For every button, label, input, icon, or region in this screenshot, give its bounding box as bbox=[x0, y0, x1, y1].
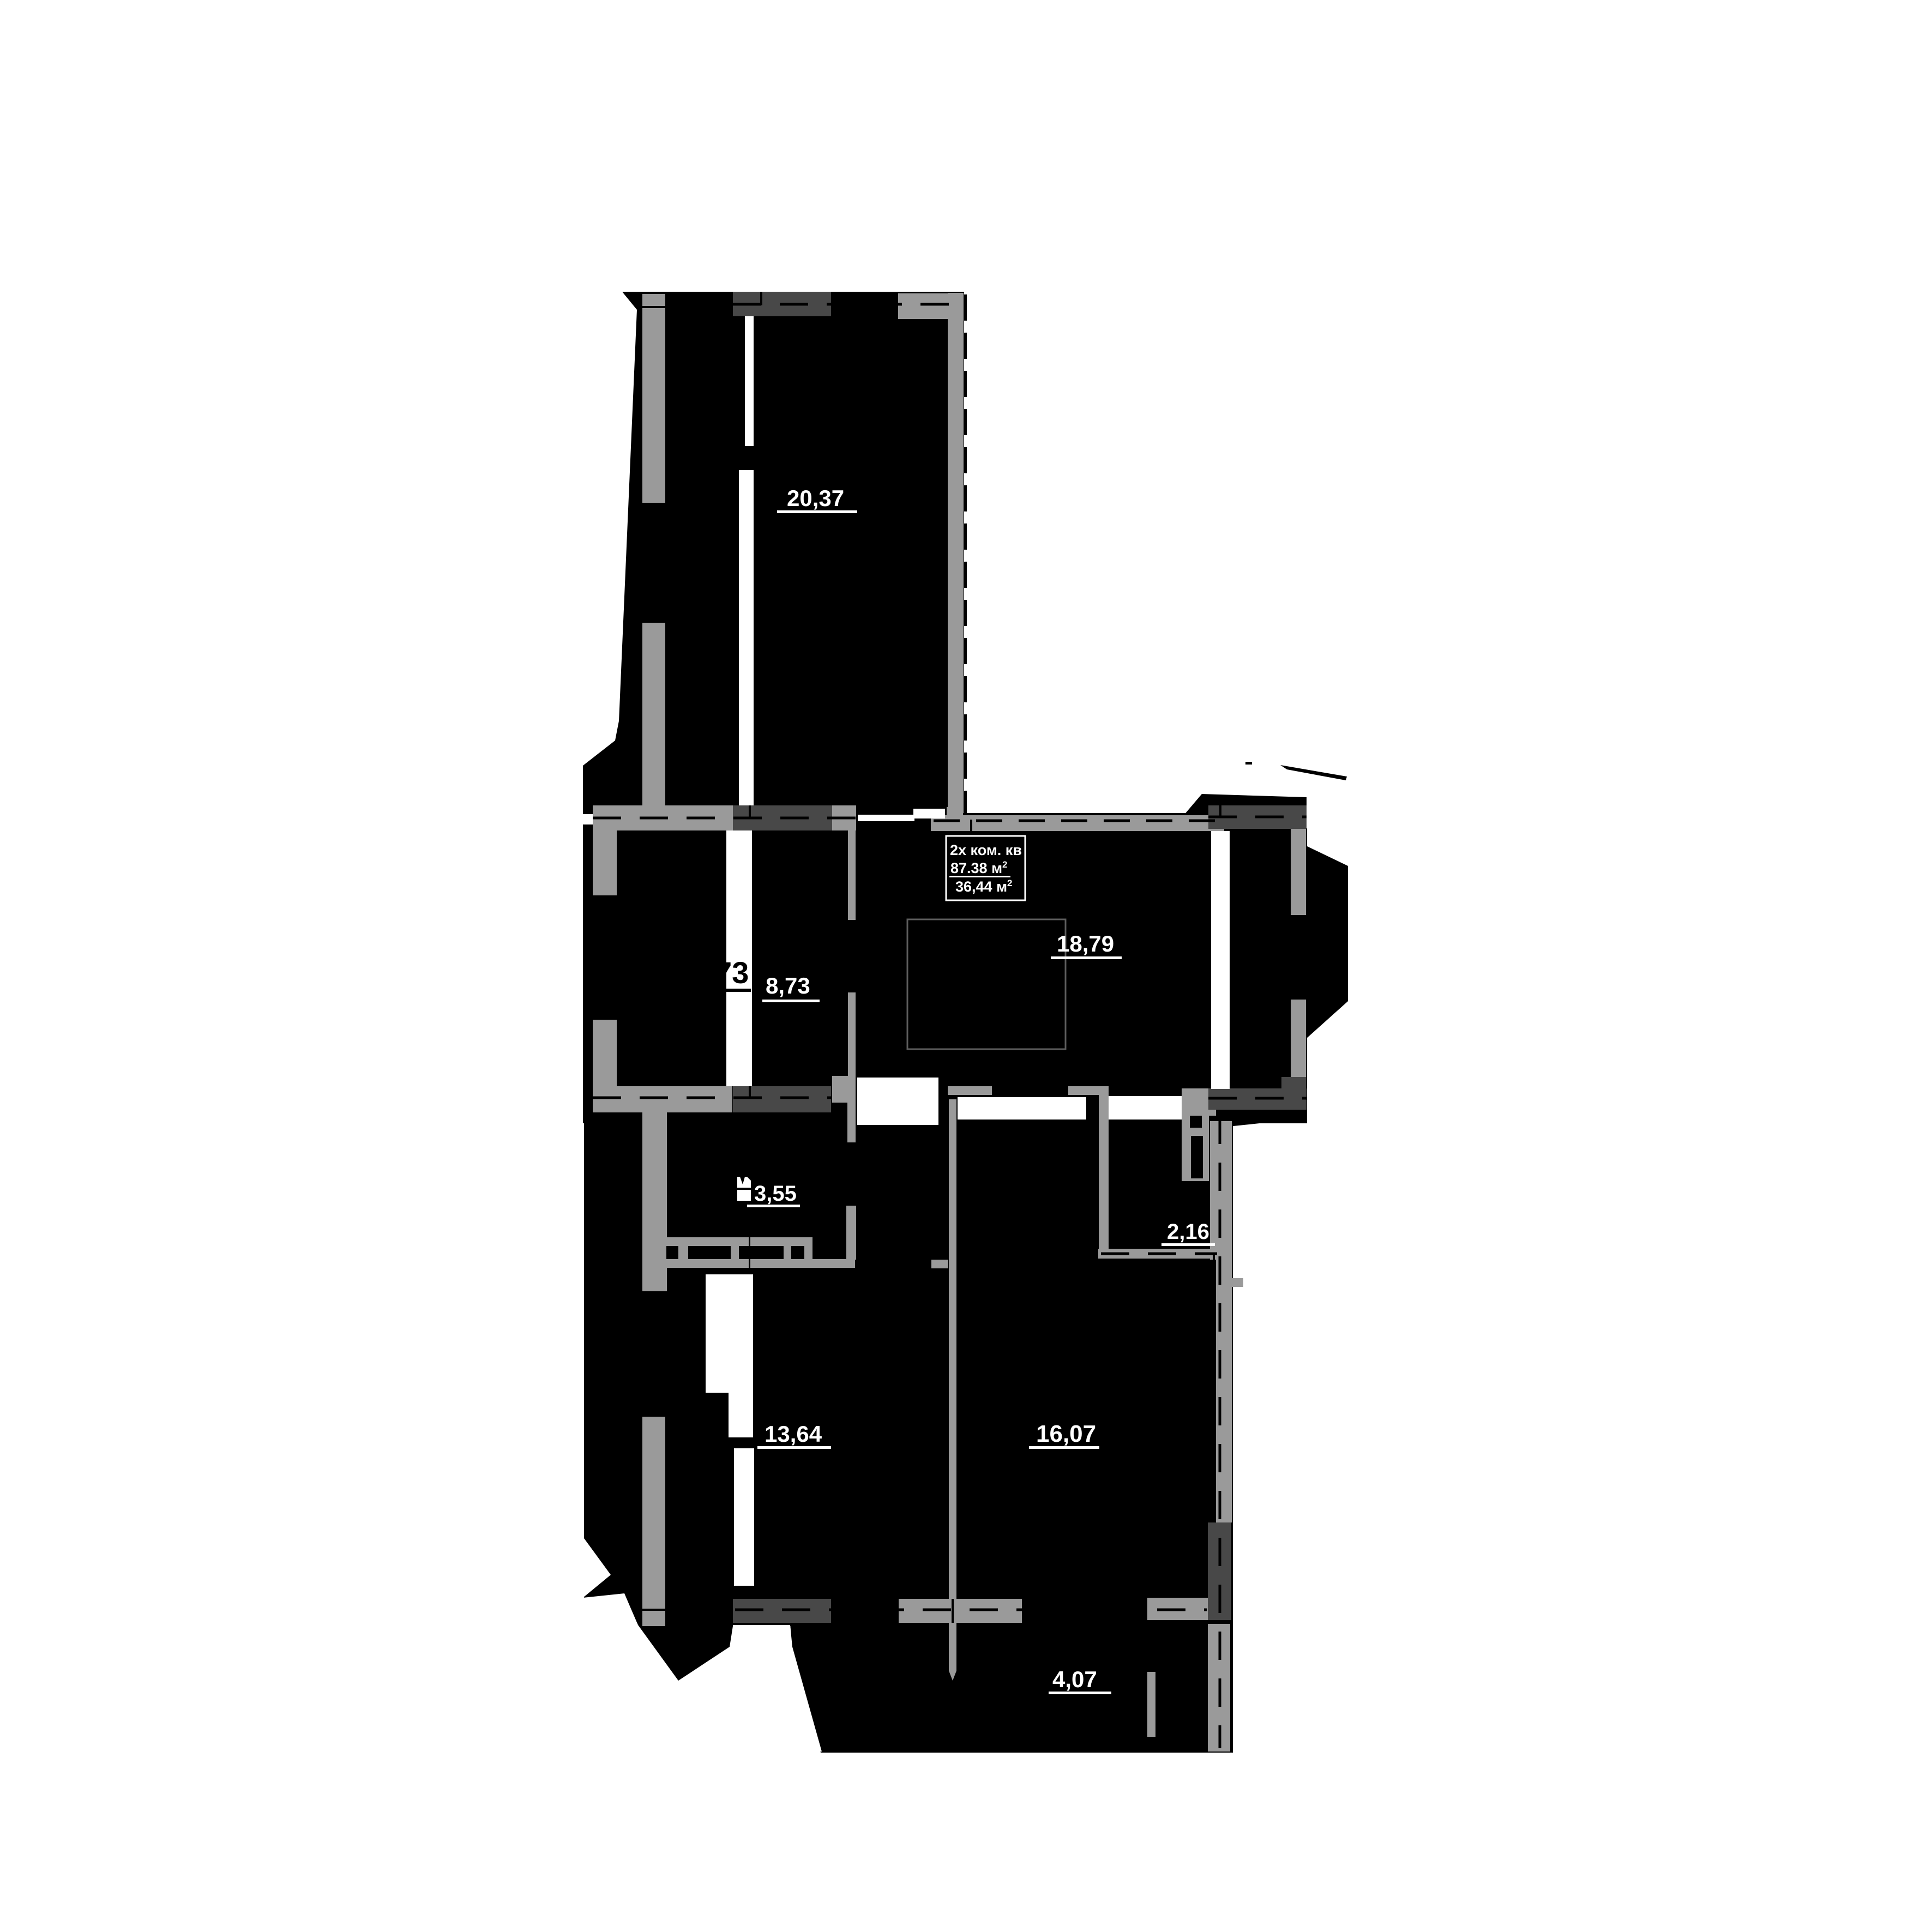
svg-text:8,73: 8,73 bbox=[766, 973, 810, 998]
svg-text:3,55: 3,55 bbox=[754, 1182, 797, 1206]
svg-text:16,07: 16,07 bbox=[1036, 1421, 1096, 1447]
svg-text:18,79: 18,79 bbox=[1057, 931, 1114, 956]
svg-text:13,64: 13,64 bbox=[765, 1421, 822, 1447]
svg-text:2х ком. кв: 2х ком. кв bbox=[950, 842, 1022, 858]
svg-text:87.38 м2: 87.38 м2 bbox=[950, 859, 1008, 876]
svg-text:2,16: 2,16 bbox=[1167, 1220, 1209, 1244]
svg-text:4,07: 4,07 bbox=[1052, 1666, 1097, 1692]
svg-text:20,37: 20,37 bbox=[787, 485, 844, 511]
svg-text:36,44 м2: 36,44 м2 bbox=[955, 878, 1013, 895]
